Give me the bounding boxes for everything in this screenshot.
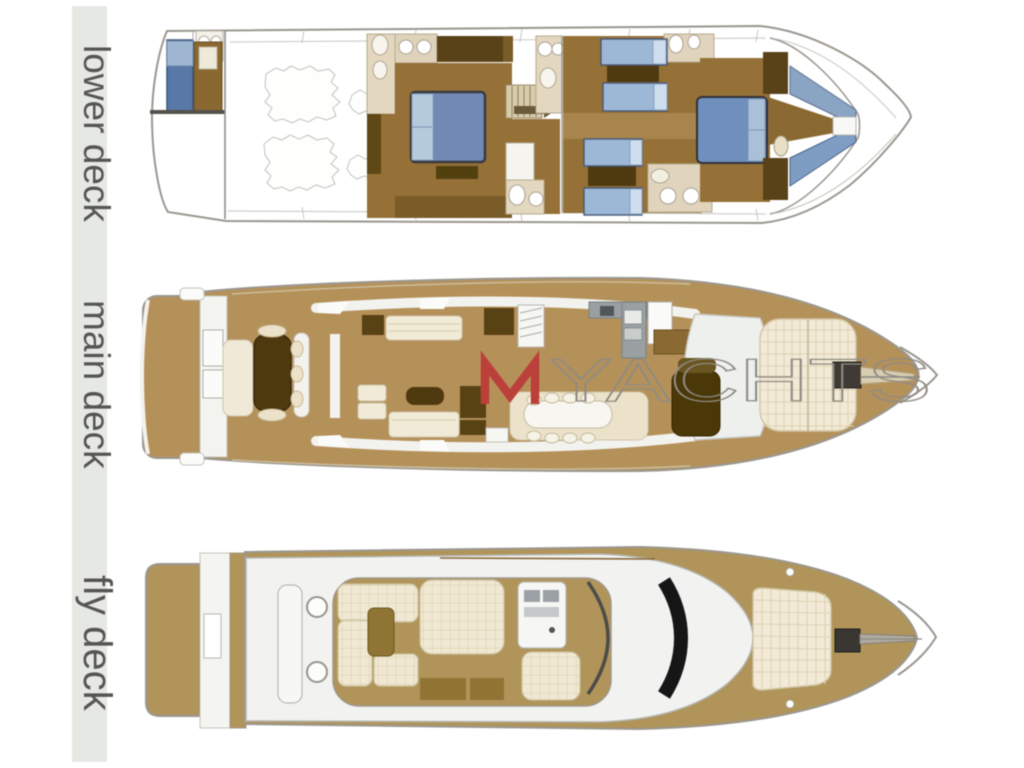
svg-text:main deck: main deck	[76, 300, 117, 469]
svg-text:YACHTS: YACHTS	[549, 347, 931, 414]
svg-text:lower deck: lower deck	[76, 45, 117, 222]
svg-text:fly deck: fly deck	[75, 575, 119, 712]
